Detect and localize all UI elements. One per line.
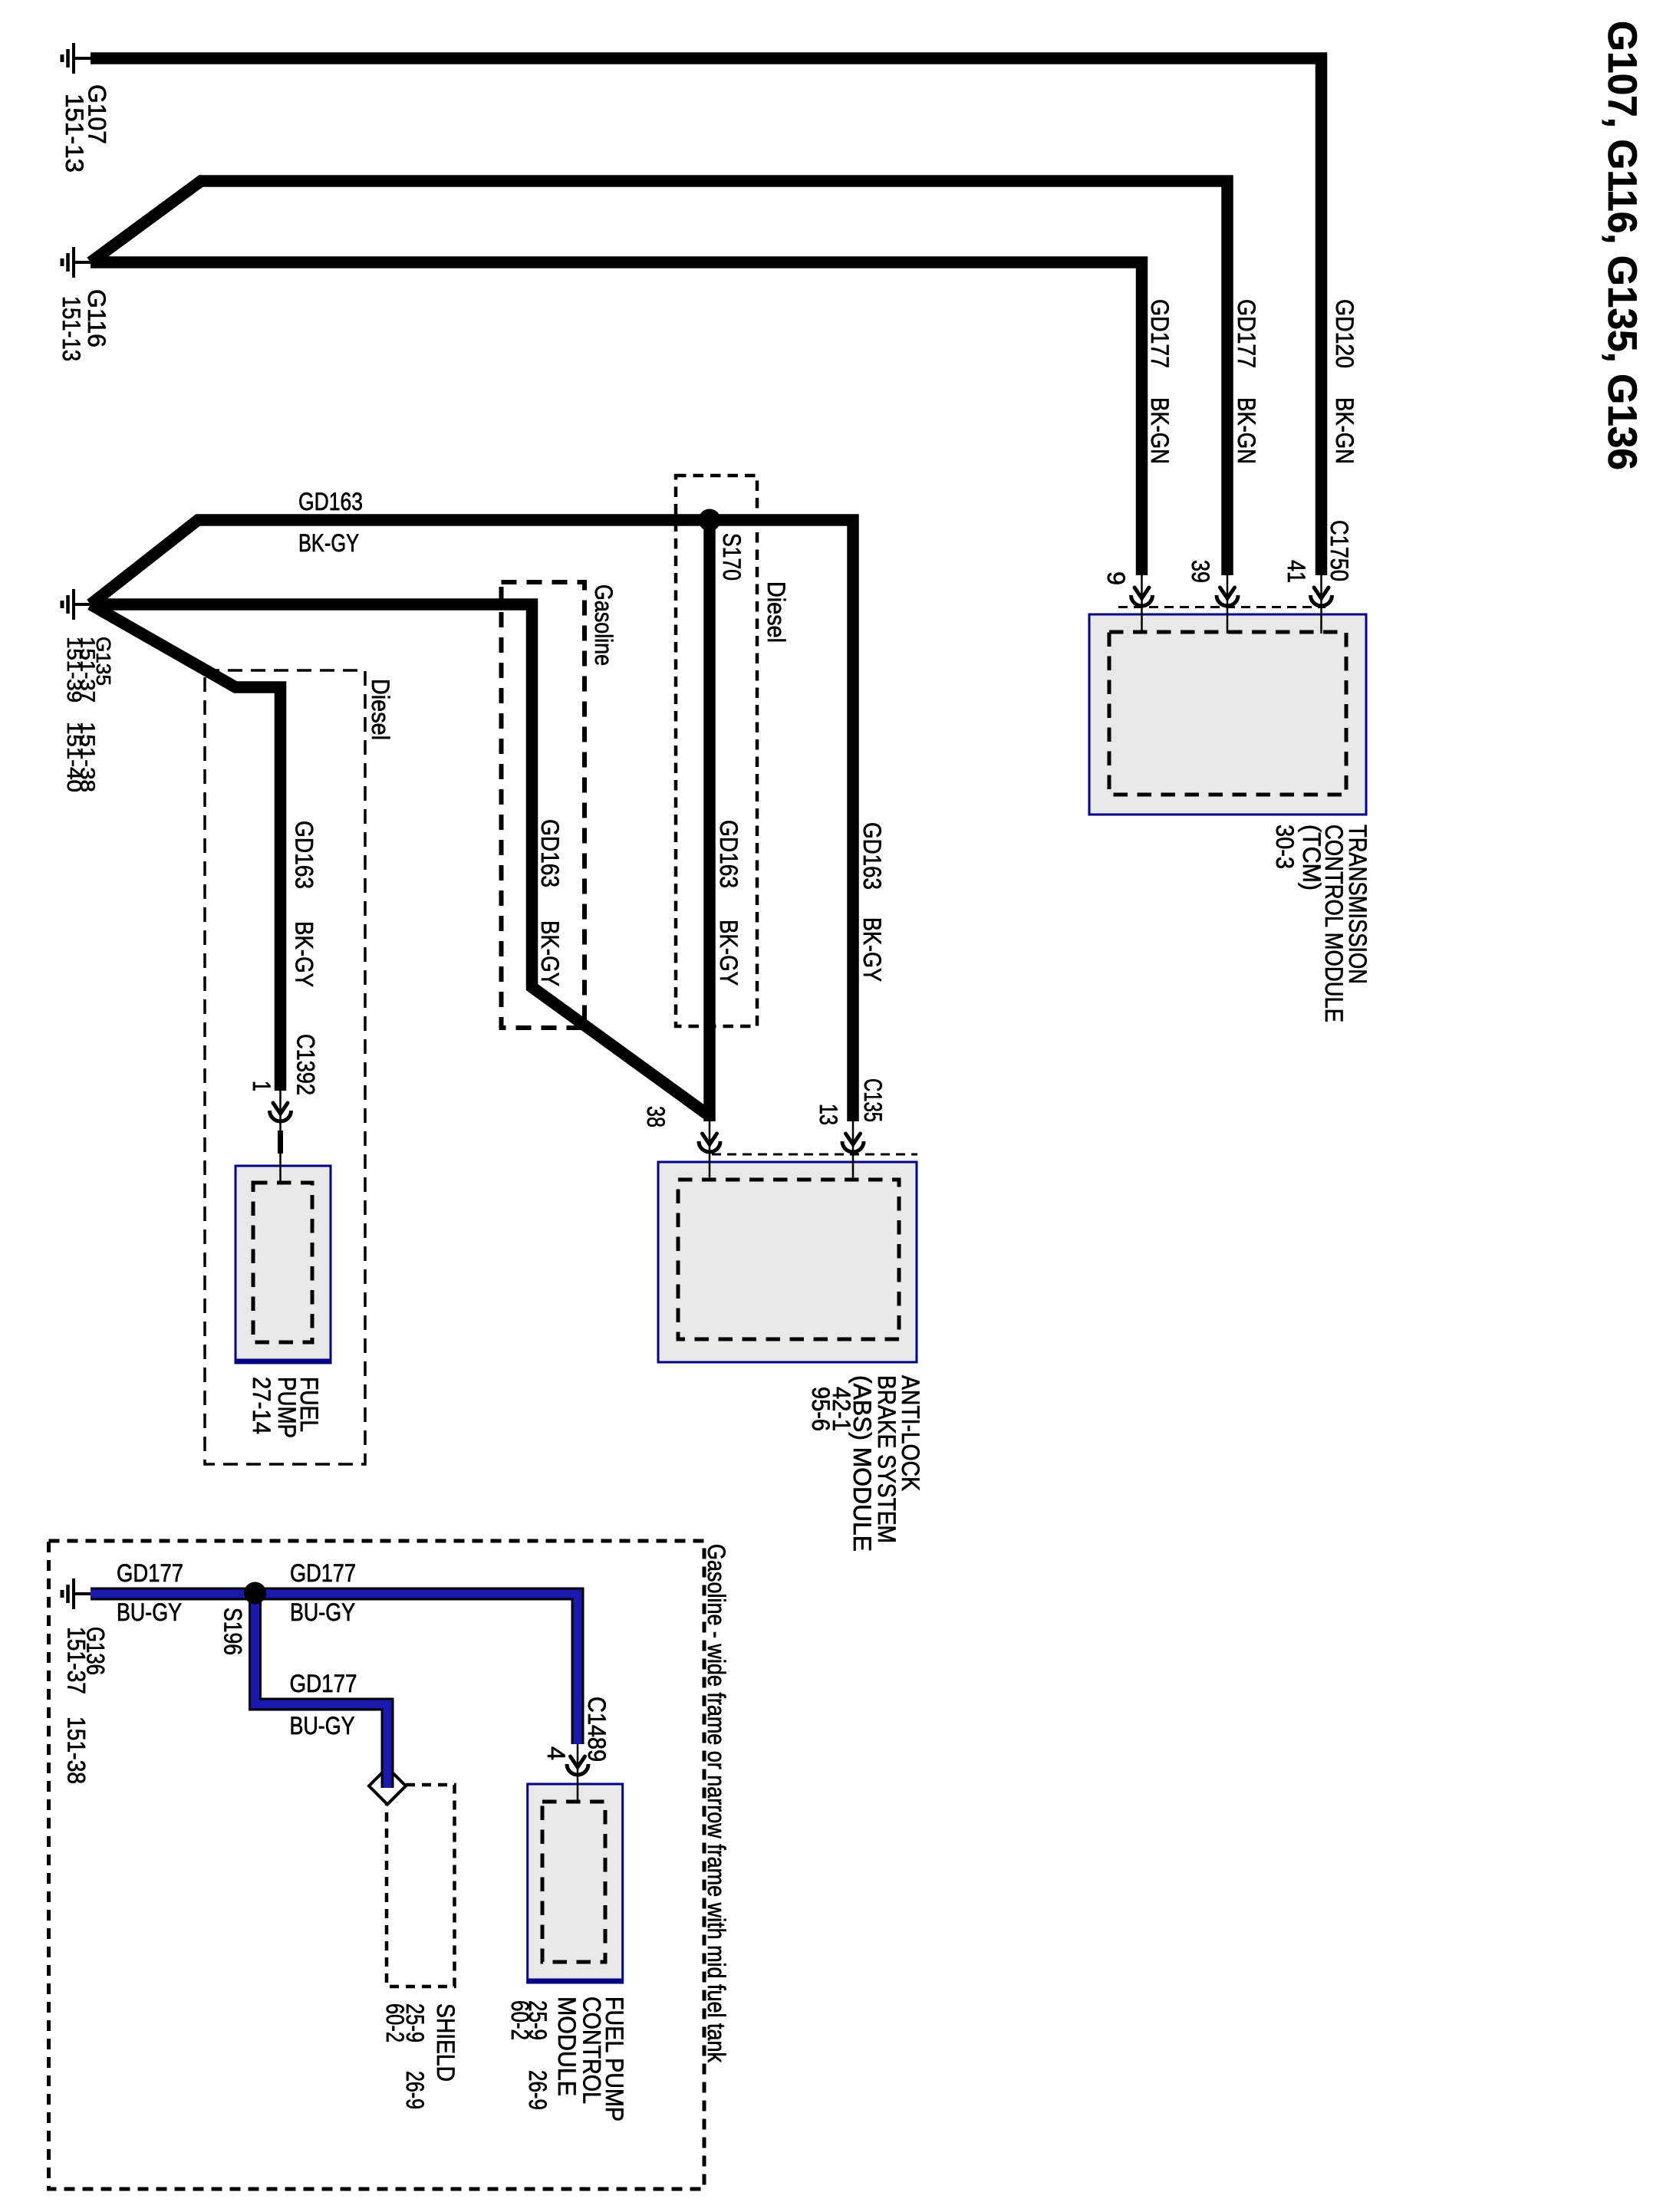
svg-text:30-3: 30-3 [1271, 825, 1299, 869]
svg-text:G107, G116, G135, G136: G107, G116, G135, G136 [1599, 21, 1645, 470]
svg-text:4: 4 [542, 1746, 570, 1760]
svg-text:GD163: GD163 [291, 821, 318, 889]
svg-text:151-39: 151-39 [63, 637, 86, 703]
svg-text:CONTROL: CONTROL [578, 1996, 606, 2104]
svg-text:GD120: GD120 [1331, 299, 1358, 368]
svg-text:G116: G116 [83, 289, 110, 347]
svg-text:60-2: 60-2 [381, 2003, 409, 2042]
svg-text:BK-GN: BK-GN [1146, 397, 1174, 464]
svg-text:95-6: 95-6 [807, 1387, 835, 1431]
svg-text:BK-GY: BK-GY [298, 529, 359, 557]
svg-text:BK-GY: BK-GY [536, 920, 564, 986]
svg-text:BU-GY: BU-GY [290, 1598, 355, 1626]
svg-text:BU-GY: BU-GY [117, 1598, 182, 1626]
svg-text:C1489: C1489 [583, 1697, 611, 1762]
svg-text:(TCM): (TCM) [1298, 825, 1325, 890]
svg-text:13: 13 [815, 1104, 842, 1125]
svg-text:S170: S170 [718, 533, 746, 581]
svg-text:GD163: GD163 [715, 820, 743, 888]
svg-text:BRAKE SYSTEM: BRAKE SYSTEM [873, 1375, 901, 1543]
svg-text:9: 9 [1102, 571, 1130, 585]
svg-text:PUMP: PUMP [273, 1377, 301, 1438]
svg-text:GD177: GD177 [1233, 299, 1260, 368]
svg-text:BK-GY: BK-GY [291, 921, 318, 987]
svg-text:GD177: GD177 [290, 1559, 356, 1587]
svg-text:27-14: 27-14 [248, 1377, 275, 1434]
svg-text:41: 41 [1283, 560, 1310, 583]
svg-text:Gasoline: Gasoline [590, 584, 617, 666]
svg-text:S196: S196 [219, 1608, 247, 1655]
svg-text:BU-GY: BU-GY [290, 1712, 355, 1740]
svg-text:C135: C135 [859, 1078, 887, 1122]
svg-text:26-9: 26-9 [401, 2071, 429, 2109]
svg-text:Diesel: Diesel [762, 581, 790, 643]
svg-text:151-40: 151-40 [63, 722, 86, 792]
svg-text:Gasoline - wide frame or narro: Gasoline - wide frame or narrow frame wi… [703, 1544, 730, 2063]
svg-text:MODULE: MODULE [553, 1996, 581, 2096]
svg-text:BK-GY: BK-GY [715, 920, 743, 986]
svg-text:BK-GY: BK-GY [858, 917, 886, 982]
svg-text:39: 39 [1187, 560, 1214, 583]
svg-text:SHIELD: SHIELD [432, 2003, 459, 2082]
svg-text:BK-GN: BK-GN [1233, 397, 1260, 464]
svg-text:GD177: GD177 [290, 1670, 357, 1697]
svg-text:38: 38 [642, 1106, 670, 1127]
svg-text:BK-GN: BK-GN [1331, 397, 1358, 464]
svg-text:60-2: 60-2 [506, 2000, 534, 2040]
svg-text:GD163: GD163 [298, 488, 363, 515]
svg-text:151-38: 151-38 [63, 1717, 91, 1784]
svg-text:Diesel: Diesel [367, 679, 394, 740]
svg-text:26-9: 26-9 [524, 2070, 552, 2110]
svg-text:GD163: GD163 [536, 819, 564, 887]
svg-text:151-13: 151-13 [58, 296, 85, 361]
svg-text:C1750: C1750 [1325, 520, 1353, 581]
svg-text:1: 1 [248, 1081, 275, 1091]
svg-text:GD177: GD177 [1146, 299, 1174, 368]
svg-text:GD177: GD177 [117, 1559, 183, 1587]
svg-text:151-13: 151-13 [61, 94, 88, 173]
svg-text:C1392: C1392 [292, 1034, 320, 1095]
svg-text:GD163: GD163 [858, 822, 886, 890]
svg-text:151-37: 151-37 [63, 1627, 91, 1694]
